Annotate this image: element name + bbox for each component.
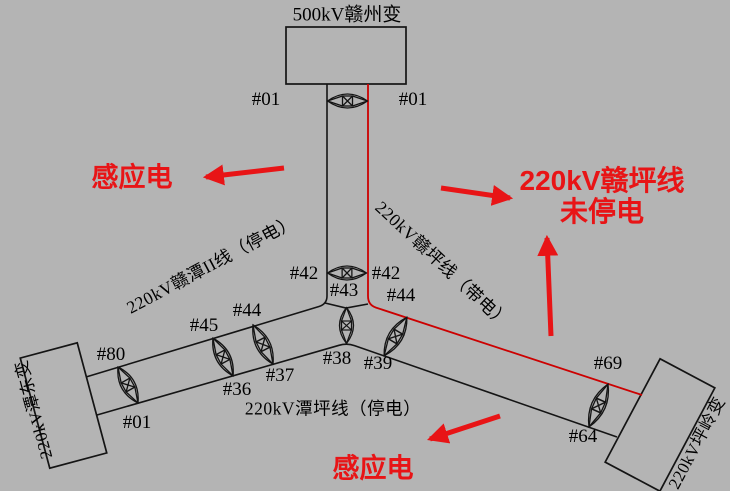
energized-warning-label: 220kV赣坪线 未停电 bbox=[520, 165, 685, 227]
tower-label: #01 bbox=[123, 412, 152, 434]
tower-label: #64 bbox=[569, 426, 598, 448]
transmission-line-diagram: 500kV赣州变 220kV潭东变 220kV坪岭变 220kV赣潭II线（停电… bbox=[0, 0, 730, 491]
tower-label: #01 bbox=[399, 89, 428, 111]
line-tanping-label: 220kV潭坪线（停电） bbox=[245, 396, 421, 421]
tower-label: #44 bbox=[387, 285, 416, 307]
warning-arrow-up bbox=[547, 238, 551, 336]
tower-label: #38 bbox=[323, 348, 352, 370]
induced-bottom-arrow bbox=[430, 416, 500, 439]
warning-arrow-right bbox=[441, 188, 510, 198]
tower-label: #44 bbox=[233, 300, 262, 322]
energized-warning-line2: 未停电 bbox=[520, 196, 685, 227]
tower-label: #01 bbox=[252, 89, 281, 111]
induced-left-arrow bbox=[206, 168, 284, 177]
tower-symbol bbox=[340, 308, 354, 344]
induced-voltage-label-bottom: 感应电 bbox=[333, 447, 414, 486]
induced-voltage-label-left: 感应电 bbox=[92, 156, 173, 195]
tower-symbol bbox=[247, 322, 279, 368]
tower-label: #37 bbox=[266, 365, 295, 387]
tower-symbol bbox=[328, 266, 367, 280]
tower-symbol bbox=[207, 335, 239, 379]
tower-label: #42 bbox=[290, 263, 319, 285]
tower-symbol bbox=[583, 381, 615, 429]
tower-symbol bbox=[328, 94, 368, 108]
line-tanping-deenergized bbox=[97, 344, 617, 437]
tower-label: #39 bbox=[364, 353, 393, 375]
tower-label: #45 bbox=[190, 315, 219, 337]
energized-warning-line1: 220kV赣坪线 bbox=[520, 165, 685, 196]
tower-label: #43 bbox=[330, 280, 359, 302]
tower-label: #80 bbox=[97, 344, 126, 366]
tower-label: #42 bbox=[372, 263, 401, 285]
tower-label: #36 bbox=[223, 379, 252, 401]
tower-label: #69 bbox=[594, 353, 623, 375]
station-ganzhou-label: 500kV赣州变 bbox=[293, 0, 402, 27]
tower-symbol bbox=[112, 364, 144, 407]
ganzhou-substation-box bbox=[286, 27, 406, 84]
